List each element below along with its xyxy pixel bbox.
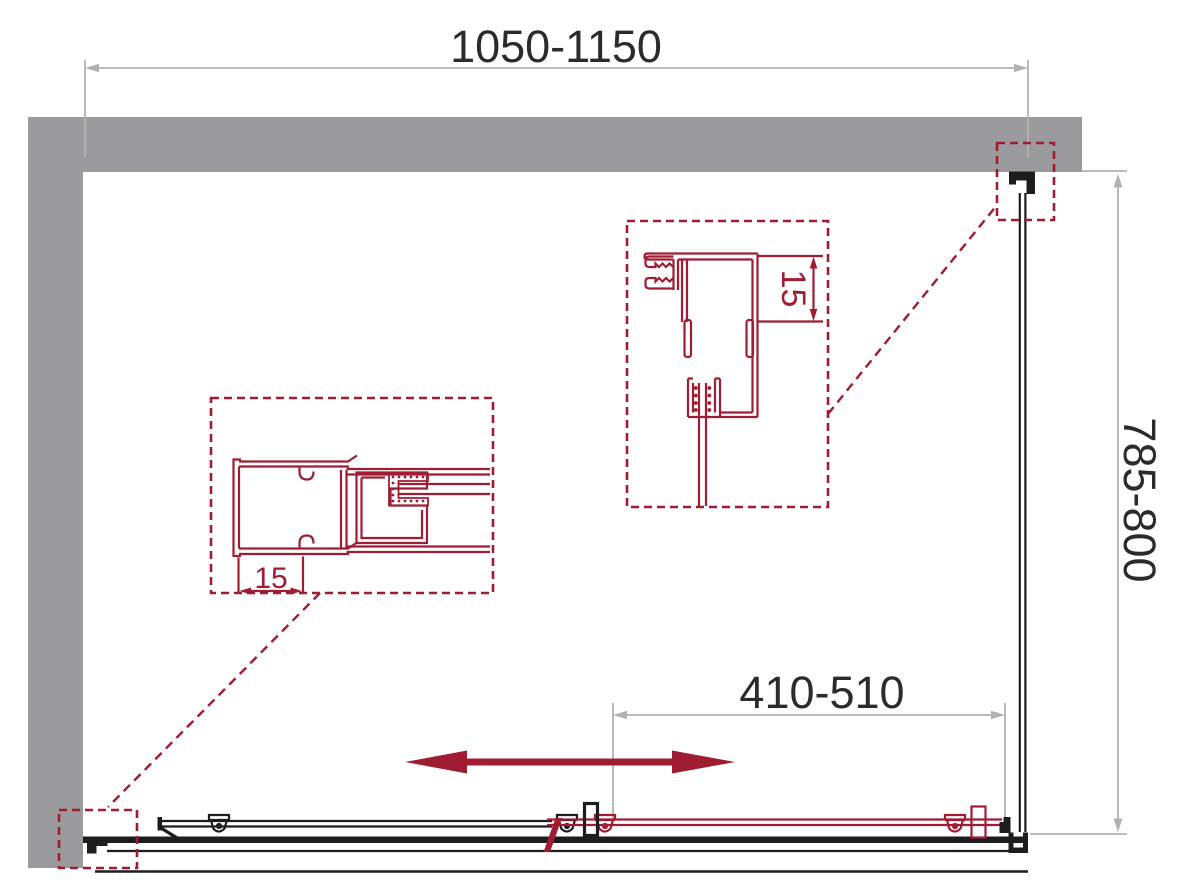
arrowhead-left-icon [613,711,627,720]
arrowhead-right-icon [1014,64,1028,73]
glass-clamp [688,379,720,418]
leader-line-wall-profile [828,205,997,414]
insert-bar-left [685,320,692,357]
channel-left-wall [682,260,687,323]
profile-bottom-fin [239,543,357,555]
arrowhead-right-icon [991,711,1005,720]
shower-enclosure-drawing: 1050-1150 785-800 410-510 [0,0,1200,890]
enclosure-frame [83,172,1035,872]
left-wall [28,117,83,868]
profile-hook-bottom [300,536,314,549]
dimension-side-depth: 785-800 [1030,171,1165,834]
arrowhead-left-icon [85,64,99,73]
profile-top-fin [239,456,357,467]
wall-clip-lower [646,278,674,289]
wall-profile-dim-label: 15 [774,270,812,308]
dimension-door-opening: 410-510 [613,667,1005,820]
door-handle-bracket [544,818,563,852]
door-handle-knob [972,807,986,838]
roller-fixed-left [209,815,229,832]
insert-bar-right [747,320,754,357]
arrowhead-down-icon [1114,819,1123,833]
arrowhead-up-icon [1114,174,1123,188]
gasket-dots [694,386,711,412]
top-wall [28,117,1082,172]
roller-door-right [945,815,965,832]
wall-bracket-top [1009,172,1035,195]
detail-wall-profile: 15 [645,254,824,507]
overall-width-label: 1050-1150 [450,21,662,72]
clip-stem [674,260,679,291]
glass-fin-bottom [347,547,491,553]
leader-line-center-profile [108,593,320,807]
arrowhead-down-icon [810,309,818,321]
corner-profile-left [87,839,108,854]
center-detail-dim-label: 15 [254,562,287,595]
fixed-glass-section [341,470,347,548]
walls [28,117,1082,868]
profile-hook-top [300,467,314,480]
door-opening-label: 410-510 [739,667,904,718]
glass-section [699,383,706,506]
side-glass-panel [1020,193,1026,832]
detail-box-left [211,398,493,593]
side-depth-label: 785-800 [1114,417,1165,582]
detail-center-junction: 15 [234,456,491,596]
arrowhead-up-icon [810,257,818,269]
wall-clip-upper [646,257,674,268]
sliding-door-glass [547,820,1002,826]
bottom-track [83,837,1028,844]
slide-direction-arrow-icon [405,751,735,774]
